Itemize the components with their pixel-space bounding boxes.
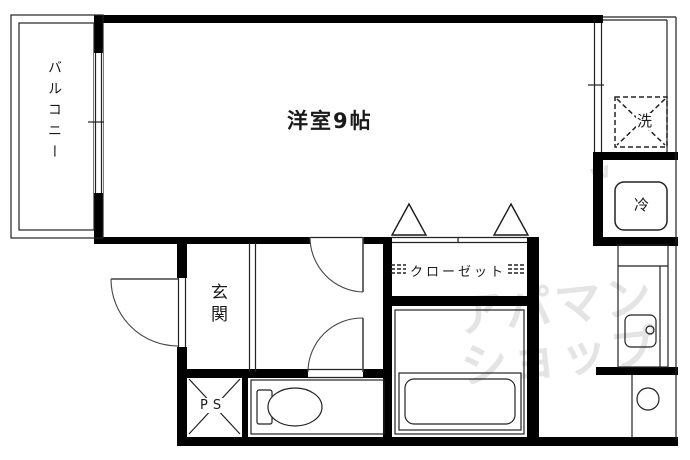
wall-hall-bottom-right [363, 369, 392, 378]
window-washer [588, 23, 604, 152]
wall-entry-left-lower [177, 347, 187, 446]
toilet-door [308, 318, 363, 372]
bathroom-line [395, 310, 524, 434]
closet-triangle-left [392, 204, 426, 235]
balcony-label: バルコニー [44, 60, 64, 165]
wall-bottom [177, 437, 678, 446]
entry-step-line [250, 243, 256, 372]
wall-hall-bottom-left [187, 369, 308, 378]
closet-door-triangles [392, 204, 528, 235]
toilet-icon [257, 388, 322, 426]
wall-room-south-left [94, 237, 310, 244]
wall-stove-nook-top [596, 367, 678, 375]
wall-closet-bath-right [527, 237, 539, 437]
bathtub-inner [405, 379, 515, 424]
thin-lines [11, 15, 676, 440]
washer-label: 洗 [636, 113, 653, 130]
hall-room-door [310, 237, 363, 292]
kitchen-sink [625, 315, 656, 347]
closet-label: クローゼット [410, 261, 506, 280]
burner-circle [637, 388, 659, 410]
wall-closet-bottom-bath-top [383, 296, 539, 306]
walls [94, 15, 678, 446]
closet-hatch-right [508, 265, 526, 273]
kitchen-counter [618, 245, 668, 367]
wall-entry-left-upper [177, 243, 187, 278]
wall-ps-toilet-divider [242, 377, 248, 437]
wall-top [94, 15, 603, 23]
closet-opening [392, 237, 527, 243]
main-room-label: 洋室9帖 [287, 105, 373, 135]
closet-triangle-right [494, 204, 528, 235]
wall-room-right [593, 160, 603, 246]
doors [111, 237, 363, 372]
floorplan-canvas: アパマン ショップ w [0, 0, 690, 460]
bathtub-outer [399, 373, 521, 430]
closet-hatch-left [391, 265, 406, 273]
entrance-label: 玄関 [205, 283, 230, 327]
pipe-space-label: PS [198, 398, 228, 413]
window-balcony [88, 53, 104, 193]
floorplan-linework [0, 0, 690, 460]
wall-washer-bottom [593, 152, 678, 160]
entry-door [111, 279, 178, 346]
fridge-label: 冷 [633, 197, 650, 214]
